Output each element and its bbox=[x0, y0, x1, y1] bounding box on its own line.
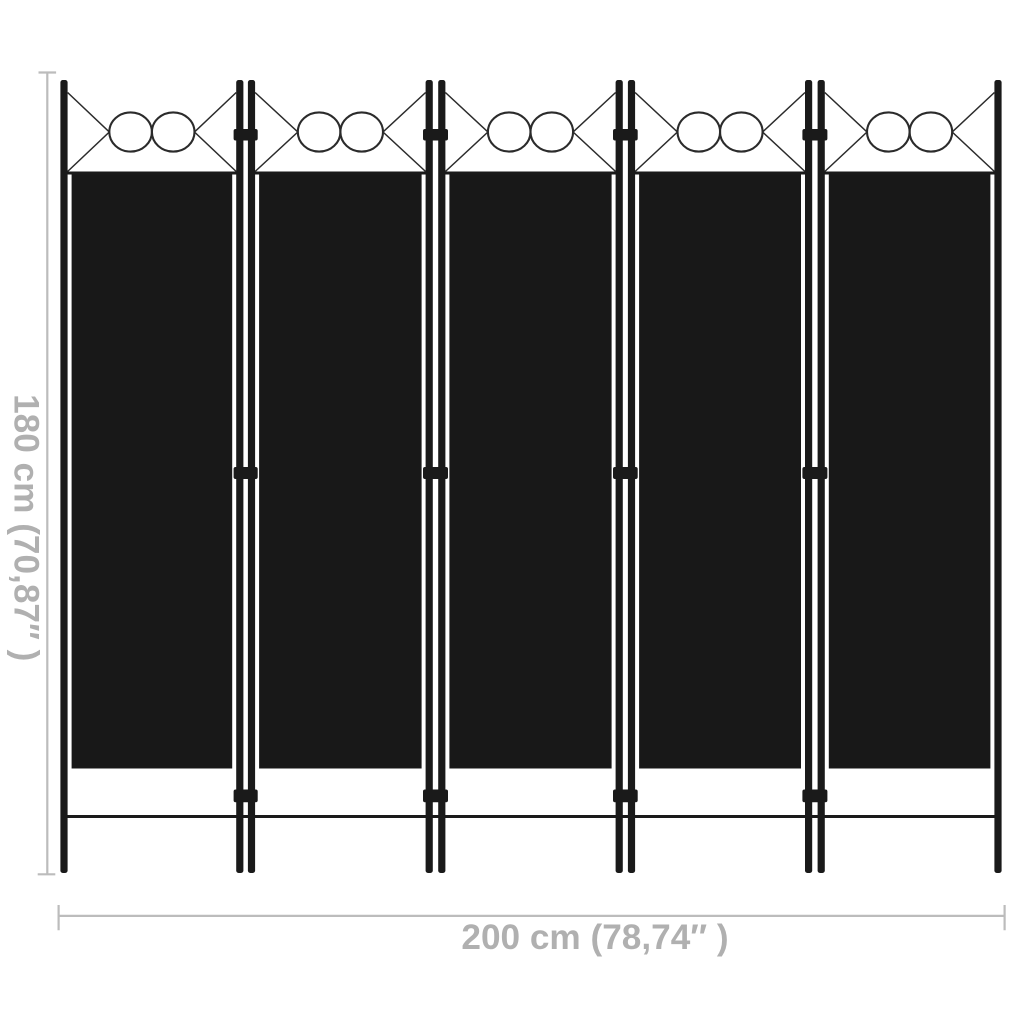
svg-text:180 cm (70,87″ ): 180 cm (70,87″ ) bbox=[6, 394, 45, 661]
svg-text:200 cm (78,74″ ): 200 cm (78,74″ ) bbox=[461, 918, 728, 957]
